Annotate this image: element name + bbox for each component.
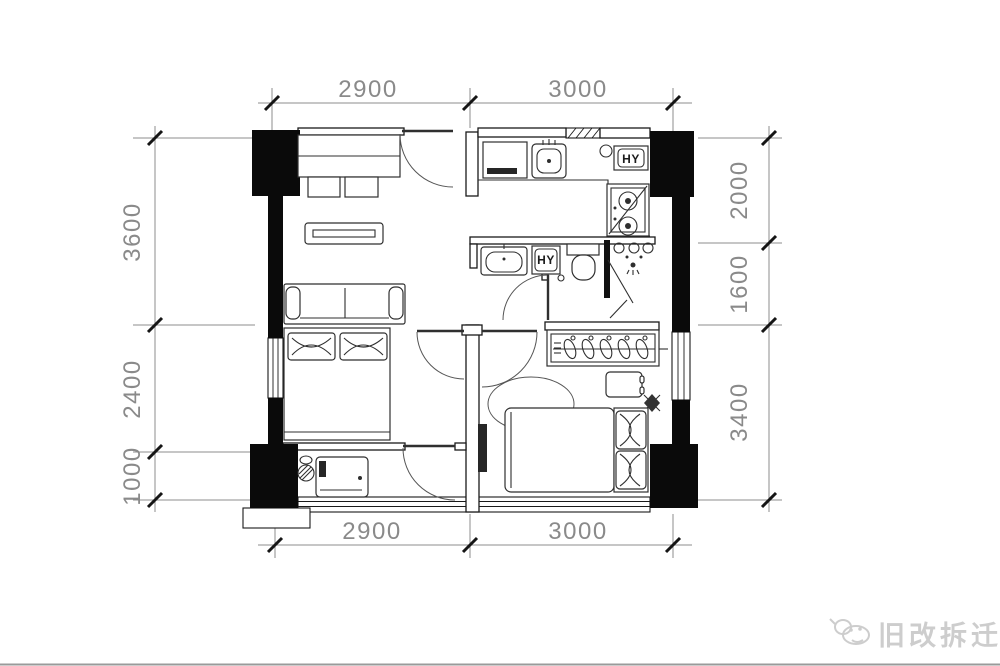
wall-bathroom-bottom <box>545 322 659 330</box>
floor-drain <box>298 456 314 481</box>
fridge <box>483 142 527 178</box>
watermark-logo <box>830 619 869 644</box>
dim-left-2400: 2400 <box>119 359 146 418</box>
dim-top-left: 2900 <box>338 76 397 103</box>
sofa <box>284 284 405 324</box>
balcony-door-arc <box>403 448 455 500</box>
dimension-left: 3600 2400 1000 <box>119 126 255 512</box>
column-top-right <box>650 131 694 197</box>
corner-fixture <box>600 145 612 157</box>
wall-left-upper <box>268 196 283 338</box>
dim-right-1600: 1600 <box>726 254 753 313</box>
shower-door <box>608 260 633 303</box>
gas-stove <box>607 184 649 236</box>
wall-right-lower <box>672 400 690 444</box>
left-room-door-arc <box>417 332 464 379</box>
bedroom-door-arc <box>482 332 537 387</box>
watermark-text: 旧改拆迁 <box>878 621 1000 651</box>
balcony <box>298 446 455 500</box>
shower <box>608 243 653 318</box>
balcony-ledge <box>243 508 310 528</box>
wardrobe <box>547 330 668 366</box>
tv-console <box>305 223 383 244</box>
column-top-left <box>252 130 300 196</box>
dim-right-2000: 2000 <box>726 160 753 219</box>
wall-shower <box>604 240 610 298</box>
bed-left <box>284 328 390 440</box>
shower-head-icon <box>631 263 636 268</box>
entry-door <box>400 131 453 187</box>
wall-balcony-stub <box>455 443 466 450</box>
floor-plan-page: 2900 3000 2900 3000 3600 2400 1000 <box>0 0 1000 666</box>
wall-central <box>466 325 479 512</box>
wall-bathroom-top <box>470 237 655 244</box>
wall-top-kitchen <box>478 128 566 137</box>
wall-left-lower <box>268 398 283 446</box>
nightstand <box>606 372 644 397</box>
wall-right-upper <box>672 197 690 332</box>
washing-machine <box>316 457 368 497</box>
bed-right <box>505 408 648 492</box>
stool <box>345 177 378 197</box>
wall-bathroom-stub <box>470 244 477 268</box>
tv-wall-mounted <box>478 424 487 472</box>
column-bottom-right <box>650 444 698 508</box>
shower-door-leaf <box>610 300 627 318</box>
watermark: 旧改拆迁 <box>830 619 1000 651</box>
wall-balcony-top <box>283 443 405 450</box>
floor-plan-drawing: 2900 3000 2900 3000 3600 2400 1000 <box>0 0 1000 666</box>
bathroom-door-arc <box>503 275 548 320</box>
dim-bottom-left: 2900 <box>342 518 401 545</box>
wall-entry-stub <box>466 132 478 196</box>
column-bottom-left <box>250 444 298 508</box>
stool <box>308 177 340 197</box>
washer-label: HY <box>537 253 555 267</box>
dim-right-3400: 3400 <box>726 382 753 441</box>
dimension-right: 2000 1600 3400 <box>698 126 782 512</box>
dimension-top: 2900 3000 <box>258 76 692 133</box>
dim-bottom-right: 3000 <box>548 518 607 545</box>
wall-top-left <box>298 128 404 135</box>
dimension-bottom: 2900 3000 <box>258 514 692 558</box>
kitchen: HY <box>478 139 650 236</box>
dim-left-1000: 1000 <box>119 446 146 505</box>
living-room <box>284 135 405 440</box>
kitchen-sink <box>532 139 566 178</box>
dim-top-right: 3000 <box>548 76 607 103</box>
water-heater-label: HY <box>622 152 640 166</box>
dim-left-3600: 3600 <box>119 202 146 261</box>
toilet <box>567 244 599 280</box>
wash-basin <box>481 244 527 275</box>
window-left <box>268 338 283 398</box>
entry-door-arc <box>400 134 453 187</box>
bathroom: HY <box>481 243 653 320</box>
water-heater: HY <box>614 146 648 170</box>
window-right <box>672 332 690 400</box>
wall-central-cap <box>462 325 482 335</box>
wall-top-right <box>600 128 650 138</box>
